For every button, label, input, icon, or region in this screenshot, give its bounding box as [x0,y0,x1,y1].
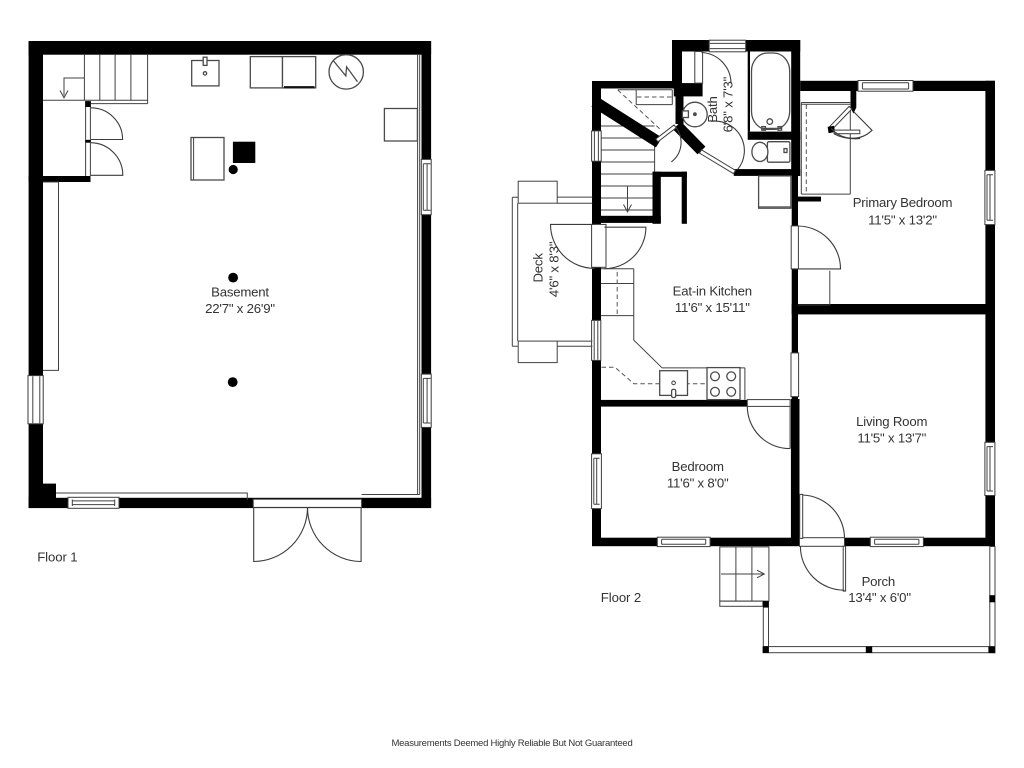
svg-text:Floor 1: Floor 1 [37,550,77,565]
svg-text:6'8" x 7'3": 6'8" x 7'3" [721,76,736,132]
svg-text:13'4" x 6'0": 13'4" x 6'0" [848,590,911,605]
svg-text:Porch: Porch [862,574,895,589]
svg-text:Bath: Bath [705,96,720,122]
svg-text:Measurements Deemed Highly Rel: Measurements Deemed Highly Reliable But … [391,738,632,749]
svg-text:11'5" x 13'7": 11'5" x 13'7" [857,431,926,446]
svg-text:22'7" x 26'9": 22'7" x 26'9" [205,301,275,316]
svg-text:Eat-in Kitchen: Eat-in Kitchen [673,283,752,298]
svg-text:Primary Bedroom: Primary Bedroom [853,195,953,210]
svg-text:11'6" x 8'0": 11'6" x 8'0" [667,476,729,491]
svg-text:11'6" x 15'11": 11'6" x 15'11" [675,300,750,315]
svg-text:4'6" x 8'3": 4'6" x 8'3" [547,241,562,297]
svg-text:11'5" x 13'2": 11'5" x 13'2" [868,212,937,227]
svg-text:Floor 2: Floor 2 [601,590,641,605]
svg-text:Basement: Basement [211,285,269,300]
svg-text:Living Room: Living Room [856,414,927,429]
svg-text:Bedroom: Bedroom [672,459,724,474]
svg-text:Deck: Deck [531,253,546,283]
